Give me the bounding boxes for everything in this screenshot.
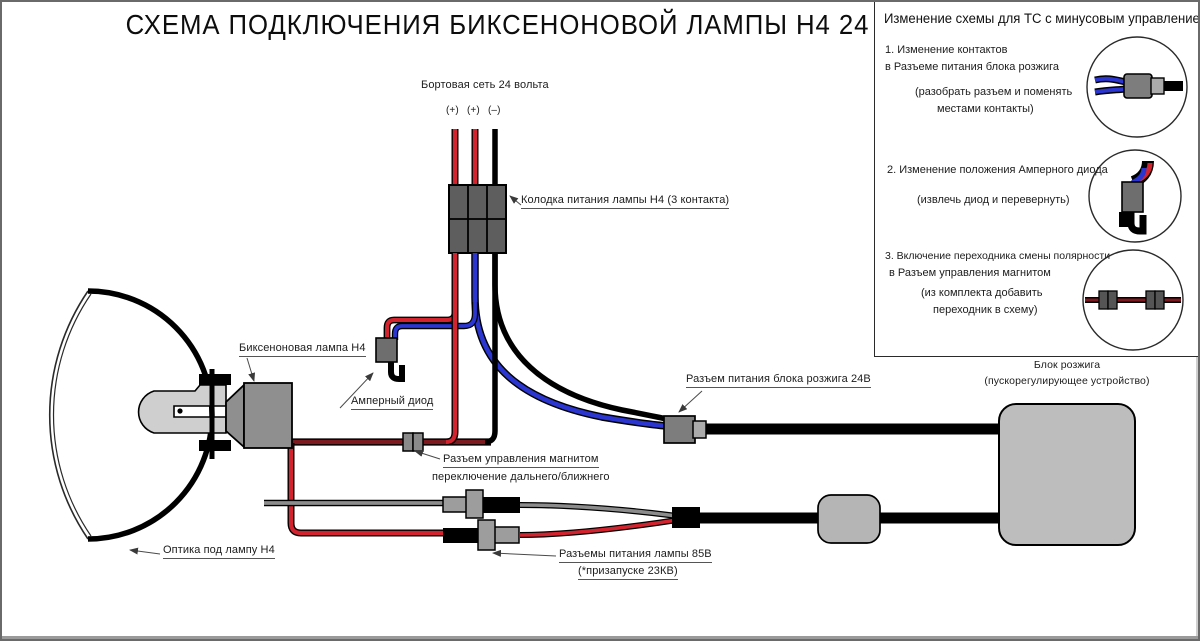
illustration-swap-contacts bbox=[1080, 30, 1195, 145]
optics-label: Оптика под лампу H4 bbox=[163, 544, 275, 559]
minus-control-panel: Изменение схемы для ТС с минусовым управ… bbox=[874, 2, 1200, 357]
ballast-label-1: Блок розжига bbox=[1034, 359, 1100, 371]
ballast-unit bbox=[999, 404, 1135, 545]
panel-item3-note1: (из комплекта добавить bbox=[921, 287, 1043, 299]
page-title: СХЕМА ПОДКЛЮЧЕНИЯ БИКСЕНОНОВОЙ ЛАМПЫ H4 … bbox=[126, 9, 983, 41]
ampere-diode bbox=[376, 338, 402, 379]
lamp-mount-flange-top bbox=[199, 374, 231, 385]
magnet-connector bbox=[403, 433, 413, 451]
lamp-power-label-1: Разъемы питания лампы 85В bbox=[559, 548, 712, 563]
panel-header: Изменение схемы для ТС с минусовым управ… bbox=[884, 11, 1200, 26]
panel-item1-line1: 1. Изменение контактов bbox=[885, 44, 1007, 56]
lamp-mount-flange-bottom bbox=[199, 440, 231, 451]
bixenon-lamp-assembly bbox=[139, 369, 292, 459]
terminal-plus-1: (+) bbox=[446, 105, 459, 117]
illustration-polarity-adapter bbox=[1078, 245, 1188, 355]
terminal-minus: (–) bbox=[488, 105, 501, 117]
wiring-diagram-canvas: СХЕМА ПОДКЛЮЧЕНИЯ БИКСЕНОНОВОЙ ЛАМПЫ H4 … bbox=[0, 0, 1200, 641]
ballast-label-2: (пускорегулирующее устройство) bbox=[984, 375, 1149, 387]
ampere-diode-label: Амперный диод bbox=[351, 395, 433, 410]
onboard-net-label: Бортовая сеть 24 вольта bbox=[421, 79, 549, 92]
lamp-power-label-2: (*призапуске 23КВ) bbox=[578, 565, 678, 580]
panel-item1-note2: местами контакты) bbox=[937, 103, 1034, 115]
lamp-85v-red-wire bbox=[291, 443, 445, 533]
cable-inline-box bbox=[818, 495, 880, 543]
panel-item3-line1: 3. Включение переходника смены полярност… bbox=[885, 250, 1110, 262]
ignition-power-plug-24v bbox=[664, 416, 1000, 443]
illustration-flip-diode bbox=[1084, 143, 1186, 249]
lamp-power-connectors-85v bbox=[443, 490, 520, 550]
lamp-body bbox=[244, 383, 292, 448]
diode-branch-wires bbox=[387, 302, 475, 340]
panel-item3-note2: переходник в схему) bbox=[933, 304, 1038, 316]
h4-power-connector-block bbox=[449, 185, 506, 253]
connector-block-label: Колодка питания лампы H4 (3 контакта) bbox=[521, 194, 729, 209]
panel-item1-note1: (разобрать разъем и поменять bbox=[915, 86, 1072, 98]
magnet-connector-label-1: Разъем управления магнитом bbox=[443, 453, 599, 468]
ignition-plug-label: Разъем питания блока розжига 24В bbox=[686, 373, 871, 388]
panel-item2-line1: 2. Изменение положения Амперного диода bbox=[887, 164, 1108, 176]
headlight-reflector bbox=[50, 291, 212, 539]
panel-item1-line2: в Разъеме питания блока розжига bbox=[885, 61, 1059, 73]
terminal-plus-2: (+) bbox=[467, 105, 480, 117]
ignition-feed-wires bbox=[475, 253, 667, 426]
magnet-control-wire bbox=[292, 433, 491, 451]
lamp-cable-to-ballast bbox=[520, 495, 1000, 543]
panel-item3-line2: в Разъем управления магнитом bbox=[889, 267, 1051, 279]
magnet-connector-label-2: переключение дальнего/ближнего bbox=[432, 471, 610, 484]
bixenon-lamp-label: Биксеноновая лампа H4 bbox=[239, 342, 366, 357]
panel-item2-note1: (извлечь диод и перевернуть) bbox=[917, 194, 1070, 206]
supply-wires bbox=[455, 129, 495, 187]
